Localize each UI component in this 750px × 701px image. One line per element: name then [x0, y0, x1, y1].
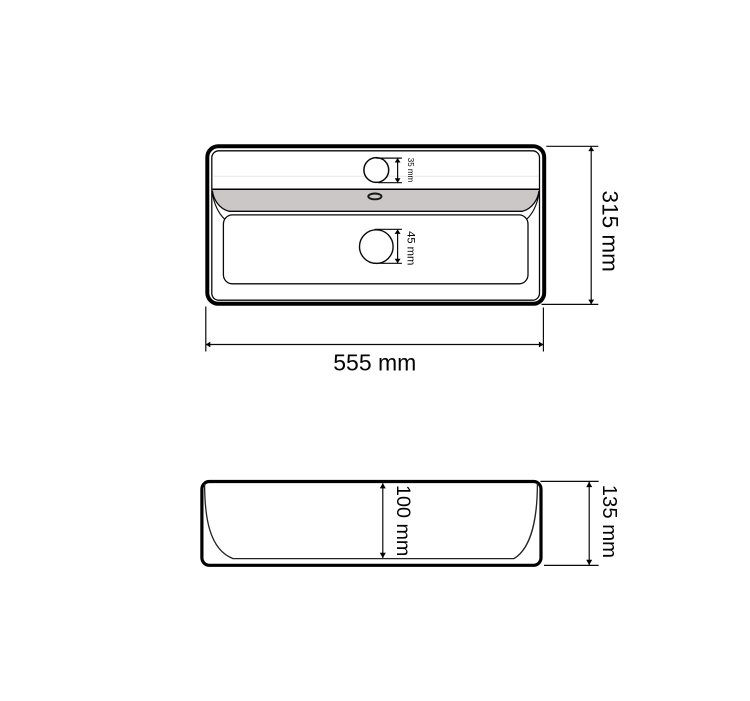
svg-text:135 mm: 135 mm: [598, 485, 620, 558]
svg-text:100 mm: 100 mm: [392, 485, 414, 556]
svg-text:555 mm: 555 mm: [333, 350, 416, 376]
svg-text:35 mm: 35 mm: [406, 158, 415, 183]
svg-text:45 mm: 45 mm: [405, 231, 417, 265]
svg-text:315 mm: 315 mm: [597, 191, 622, 272]
